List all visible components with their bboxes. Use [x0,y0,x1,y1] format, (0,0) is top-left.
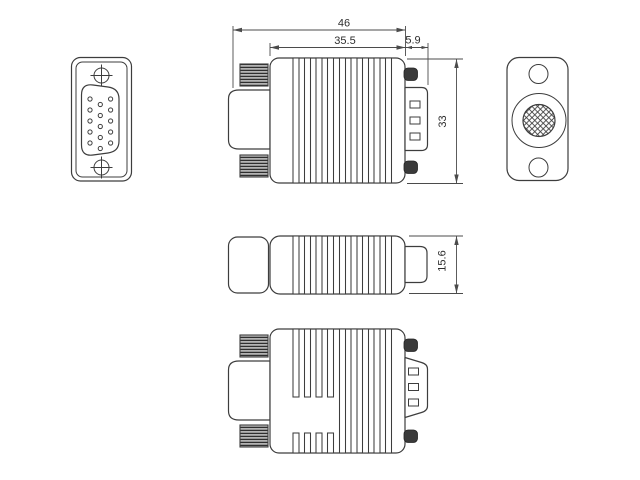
rib [363,329,369,453]
pin-hole [109,119,113,123]
rib [351,236,357,294]
rib-segment [328,329,334,397]
rib [340,329,346,453]
rib [305,236,311,294]
rib [351,58,357,183]
adapter-body [270,236,405,294]
rib [374,58,380,183]
strain-relief-ribs [293,329,392,453]
rib-segment [316,433,322,453]
technical-drawing-sheet: 46 35.5 5.9 33 15.6 [0,0,640,480]
arrowhead [454,175,458,184]
rib [386,236,392,294]
rib [293,236,299,294]
rib-segment [305,329,311,397]
rib [363,58,369,183]
rib-segment [293,433,299,453]
male-pin [409,399,419,406]
arrowhead [397,28,406,32]
arrowhead [233,28,242,32]
thumbscrew-knurl-top [240,335,268,357]
rib [305,58,311,183]
thumbscrew-knurl-bottom [240,425,268,447]
male-pin [410,117,420,124]
jack-screw-bottom [404,430,418,443]
arrowhead [422,46,428,49]
rib [316,236,322,294]
pin-hole [88,130,92,134]
dsub-face [82,85,120,155]
pin-hole [88,141,92,145]
jack-screw-bottom [404,161,418,174]
rib-segment [305,433,311,453]
male-connector-top [405,247,427,283]
male-pins [409,368,419,406]
pin-hole [98,146,102,150]
pin-hole [98,102,102,106]
rib [363,236,369,294]
top-view [229,236,428,294]
male-pins [410,101,420,140]
jack-screw-top [404,339,418,352]
rib [386,329,392,453]
thumbscrew-knurl-bottom [240,155,268,177]
dsub-d-shape [82,85,120,155]
rib [316,58,322,183]
pin-hole [88,97,92,101]
male-pin [410,133,420,140]
drawing-svg: 46 35.5 5.9 33 15.6 [0,0,640,480]
side-view [229,58,428,183]
rib [293,58,299,183]
dsub-shell-side [229,90,271,149]
dim-body-length: 35.5 [270,35,406,56]
arrowhead [454,59,458,68]
pin-hole [109,97,113,101]
jack-screw-top [404,68,418,81]
rib-segment [328,433,334,453]
pin-hole [98,113,102,117]
pin-hole [88,108,92,112]
rib [340,236,346,294]
adapter-body [270,58,405,183]
strain-relief-ribs [293,58,392,183]
rib [374,329,380,453]
male-pin [410,101,420,108]
dimension-label: 15.6 [437,250,449,271]
bottom-view [229,329,428,453]
rib-segment [293,329,299,397]
rib [374,236,380,294]
pin-hole [109,141,113,145]
rib [340,58,346,183]
pin-hole [88,119,92,123]
rear-view [507,58,568,181]
dsub-shell-top [229,237,269,293]
male-pin [409,384,419,391]
male-pin [409,368,419,375]
arrowhead [397,45,406,49]
rib [351,329,357,453]
dimension-label: 35.5 [334,35,355,47]
thumbscrew-knurl-top [240,64,268,86]
pin-hole [109,108,113,112]
knurled-thumbscrew-face [523,105,555,137]
pin-hole [98,135,102,139]
rib-segment [316,329,322,397]
arrowhead [454,285,458,294]
pin-hole [109,130,113,134]
rib [386,58,392,183]
dimension-label: 46 [338,18,350,30]
dsub-shell-side [229,361,271,420]
dimension-label: 5.9 [405,35,420,47]
adapter-body [270,329,405,453]
dimension-label: 33 [437,115,449,127]
pin-hole [98,124,102,128]
arrowhead [454,236,458,245]
arrowhead [270,45,279,49]
strain-relief-ribs [293,236,392,294]
rib [328,236,334,294]
front-view [72,58,132,182]
rib [328,58,334,183]
